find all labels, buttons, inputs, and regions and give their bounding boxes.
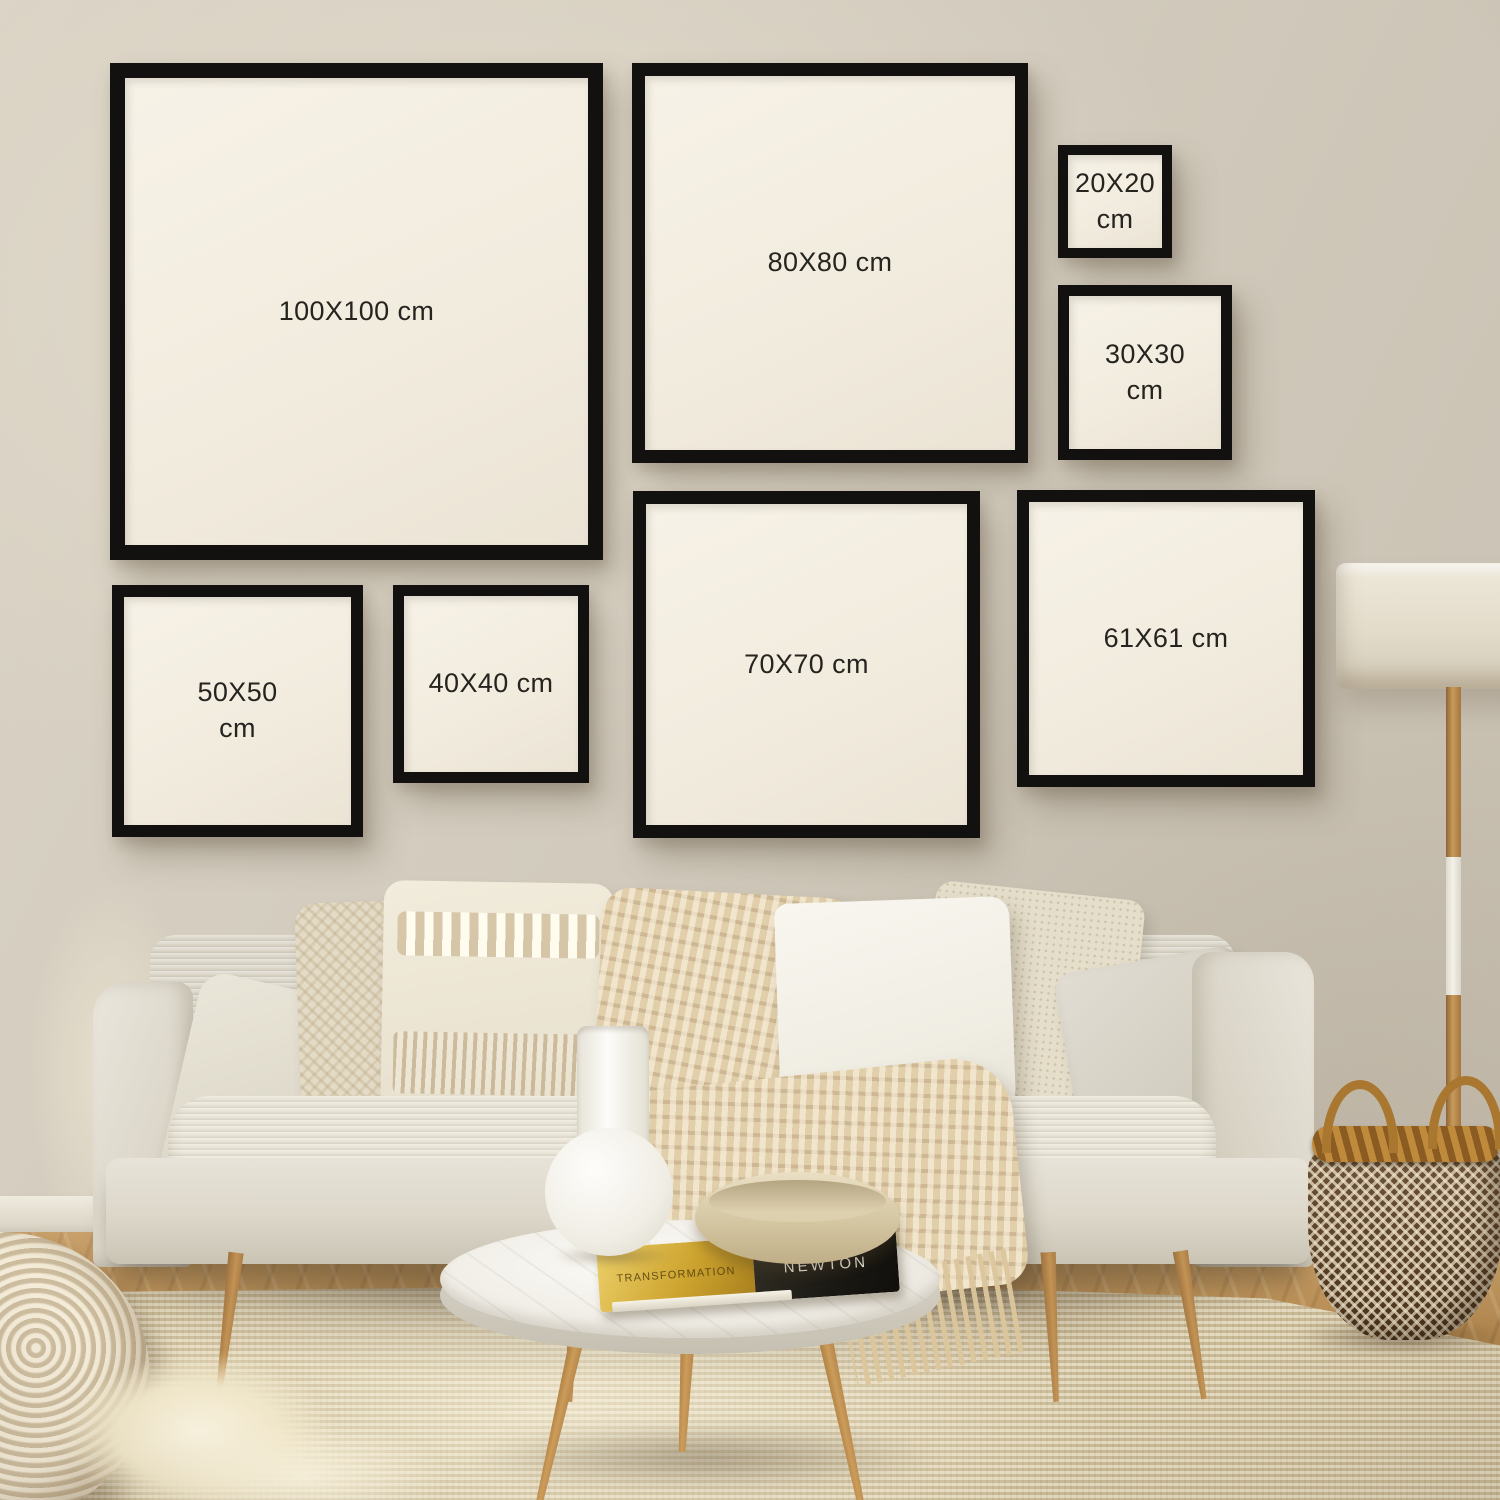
basket-handle-right — [1428, 1076, 1500, 1149]
basket-handle-left — [1322, 1080, 1398, 1153]
belly-basket — [0, 0, 1500, 1500]
living-room-scene: 100X100 cm 80X80 cm 20X20 cm 30X30 cm — [0, 0, 1500, 1500]
